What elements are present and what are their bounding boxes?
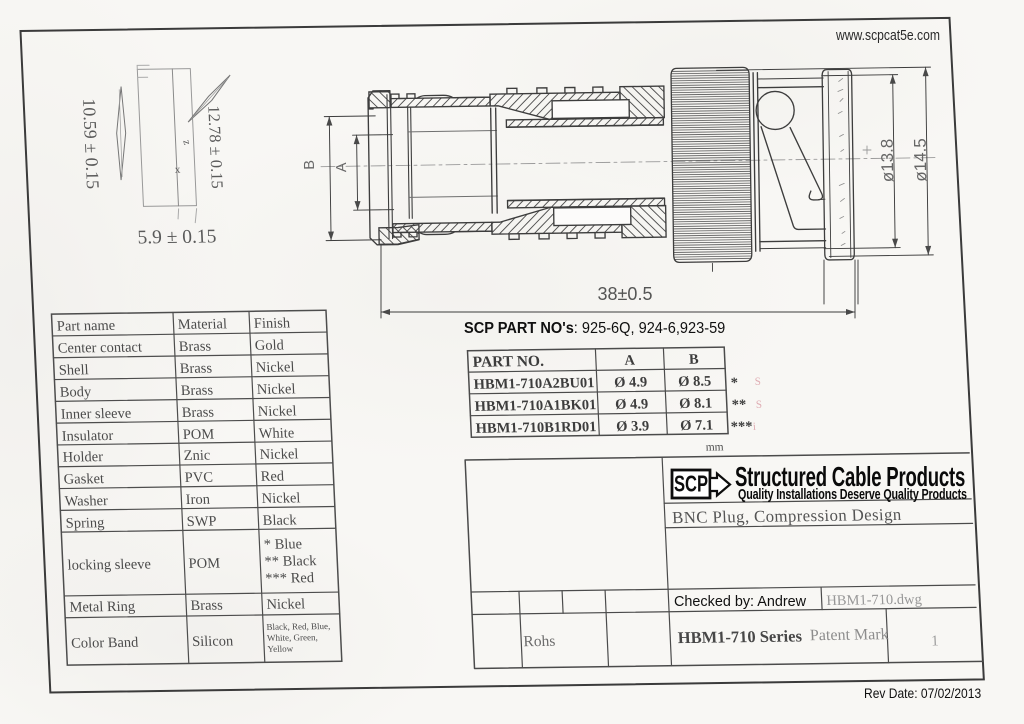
- svg-text:HBM1-710 Series: HBM1-710 Series: [677, 626, 803, 647]
- svg-text:***: ***: [730, 419, 752, 435]
- svg-text:Nickel: Nickel: [261, 490, 300, 507]
- svg-text:A: A: [624, 353, 636, 369]
- svg-text:Metal Ring: Metal Ring: [69, 599, 135, 616]
- svg-text:Shell: Shell: [58, 362, 89, 378]
- svg-text:ø13.8: ø13.8: [878, 139, 898, 183]
- svg-text:locking sleeve: locking sleeve: [67, 557, 151, 574]
- svg-text:* Blue: * Blue: [263, 536, 302, 553]
- svg-text:Inner sleeve: Inner sleeve: [60, 406, 131, 423]
- svg-text:Ø 3.9: Ø 3.9: [616, 418, 650, 434]
- svg-text:HBM1-710A2BU01: HBM1-710A2BU01: [473, 375, 594, 393]
- svg-text:Insulator: Insulator: [61, 428, 113, 445]
- svg-text:POM: POM: [182, 427, 214, 443]
- svg-text:S: S: [755, 376, 762, 388]
- svg-text:Silicon: Silicon: [192, 633, 235, 650]
- svg-text:Red: Red: [260, 469, 285, 485]
- svg-text:Brass: Brass: [181, 405, 214, 421]
- svg-text:Gasket: Gasket: [63, 471, 104, 488]
- svg-text:Nickel: Nickel: [256, 381, 295, 398]
- svg-text:** Black: ** Black: [264, 553, 317, 570]
- svg-text:Body: Body: [59, 384, 92, 400]
- svg-text:POM: POM: [188, 556, 220, 572]
- svg-text:Spring: Spring: [65, 515, 104, 532]
- svg-text:i: i: [753, 421, 757, 433]
- svg-text:5.9 ± 0.15: 5.9 ± 0.15: [137, 226, 217, 248]
- svg-text:SCP: SCP: [674, 472, 708, 497]
- svg-text:Yellow: Yellow: [267, 644, 294, 654]
- svg-text:Holder: Holder: [62, 449, 103, 466]
- svg-text:Ø 4.9: Ø 4.9: [615, 396, 649, 412]
- svg-text:A: A: [334, 162, 350, 172]
- svg-text:Ø 7.1: Ø 7.1: [680, 417, 714, 433]
- svg-text:HBM1-710.dwg: HBM1-710.dwg: [826, 592, 922, 609]
- svg-text:Washer: Washer: [64, 493, 108, 510]
- svg-text:HBM1-710A1BK01: HBM1-710A1BK01: [474, 397, 596, 415]
- svg-text:*: *: [730, 375, 738, 391]
- svg-text:x: x: [175, 164, 182, 176]
- svg-text:Black: Black: [262, 512, 297, 528]
- svg-text:B: B: [689, 352, 700, 368]
- svg-text:Brass: Brass: [178, 339, 211, 355]
- svg-text:Gold: Gold: [254, 337, 284, 353]
- svg-text:BNC Plug, Compression Design: BNC Plug, Compression Design: [672, 505, 903, 527]
- svg-text:Ø 8.5: Ø 8.5: [678, 373, 712, 389]
- svg-text:*** Red: *** Red: [265, 570, 315, 587]
- svg-text:Nickel: Nickel: [259, 446, 298, 463]
- svg-text:White: White: [258, 425, 294, 441]
- svg-text:S: S: [756, 399, 763, 411]
- svg-text:**: **: [731, 397, 746, 413]
- svg-text:12.78 ± 0.15: 12.78 ± 0.15: [204, 105, 227, 189]
- svg-text:PART NO.: PART NO.: [472, 353, 544, 371]
- svg-text:Brass: Brass: [179, 361, 212, 377]
- svg-text:Black, Red, Blue,: Black, Red, Blue,: [266, 621, 330, 632]
- svg-text:Color Band: Color Band: [71, 635, 140, 652]
- svg-text:Material: Material: [177, 316, 227, 333]
- svg-text:Nickel: Nickel: [257, 403, 296, 420]
- svg-text:Znic: Znic: [183, 448, 210, 464]
- svg-text:B: B: [302, 160, 318, 170]
- svg-text:Rohs: Rohs: [523, 633, 556, 650]
- svg-text:Patent Mark: Patent Mark: [810, 626, 889, 644]
- svg-text:Ø 8.1: Ø 8.1: [679, 395, 713, 411]
- svg-text:Nickel: Nickel: [266, 596, 305, 613]
- svg-text:PVC: PVC: [184, 470, 213, 486]
- svg-text:10.59 ± 0.15: 10.59 ± 0.15: [79, 98, 103, 189]
- svg-text:Finish: Finish: [253, 315, 291, 332]
- svg-text:Ø 4.9: Ø 4.9: [614, 374, 648, 390]
- svg-text:ø14.5: ø14.5: [911, 138, 931, 182]
- svg-text:Brass: Brass: [190, 598, 223, 614]
- svg-text:Center contact: Center contact: [57, 339, 142, 356]
- svg-text:Part name: Part name: [56, 318, 115, 335]
- svg-text:Iron: Iron: [185, 492, 211, 508]
- svg-text:38±0.5: 38±0.5: [598, 284, 653, 304]
- svg-text:Brass: Brass: [180, 383, 213, 399]
- svg-text:White, Green,: White, Green,: [267, 632, 318, 643]
- svg-text:1: 1: [931, 633, 939, 649]
- svg-text:Nickel: Nickel: [255, 359, 294, 376]
- svg-text:SWP: SWP: [186, 514, 217, 530]
- svg-text:z: z: [180, 139, 193, 146]
- svg-text:mm: mm: [705, 441, 723, 453]
- svg-text:HBM1-710B1RD01: HBM1-710B1RD01: [475, 419, 596, 437]
